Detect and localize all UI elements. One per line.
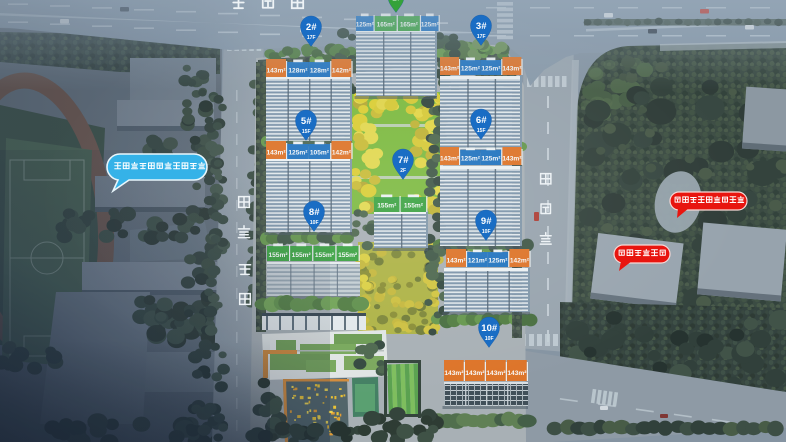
svg-text:10#: 10# xyxy=(481,323,498,334)
svg-text:2F: 2F xyxy=(400,168,406,174)
svg-text:5#: 5# xyxy=(301,116,312,127)
svg-text:15F: 15F xyxy=(302,129,311,135)
svg-text:3#: 3# xyxy=(476,21,487,32)
svg-text:9#: 9# xyxy=(481,216,492,227)
svg-text:7#: 7# xyxy=(398,155,409,166)
svg-text:10F: 10F xyxy=(485,336,494,342)
svg-text:17F: 17F xyxy=(307,35,316,41)
svg-text:1#: 1# xyxy=(392,0,400,2)
svg-text:10F: 10F xyxy=(482,229,491,235)
svg-text:15F: 15F xyxy=(477,128,486,134)
svg-text:10F: 10F xyxy=(310,220,319,226)
svg-text:8#: 8# xyxy=(309,207,320,218)
svg-text:2#: 2# xyxy=(306,22,317,33)
svg-text:17F: 17F xyxy=(477,34,486,40)
svg-text:6#: 6# xyxy=(476,115,487,126)
